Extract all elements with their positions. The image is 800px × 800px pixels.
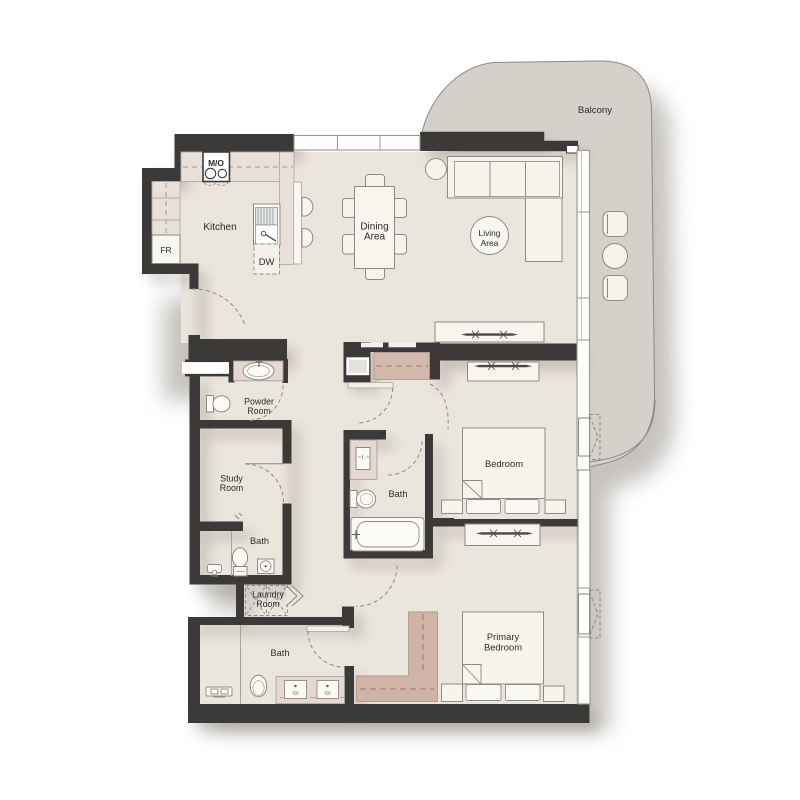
svg-text:Balcony: Balcony (578, 105, 612, 116)
svg-text:FR: FR (160, 245, 171, 255)
svg-text:Area: Area (481, 238, 499, 248)
svg-text:DW: DW (259, 256, 275, 267)
svg-text:Study: Study (220, 474, 243, 484)
svg-text:Laundry: Laundry (252, 590, 284, 600)
svg-text:Kitchen: Kitchen (203, 222, 236, 233)
svg-text:Bath: Bath (271, 648, 290, 658)
svg-text:Bath: Bath (389, 489, 408, 499)
svg-text:Primary: Primary (487, 631, 520, 642)
svg-text:Area: Area (364, 232, 386, 243)
svg-text:Bedroom: Bedroom (484, 642, 522, 653)
svg-text:Room: Room (247, 406, 270, 416)
svg-text:Room: Room (220, 483, 243, 493)
svg-text:M/O: M/O (208, 158, 224, 168)
svg-text:Bath: Bath (250, 536, 269, 546)
svg-text:Powder: Powder (244, 397, 274, 407)
svg-text:Room: Room (256, 599, 279, 609)
svg-text:Bedroom: Bedroom (485, 458, 523, 469)
svg-text:Living: Living (479, 228, 501, 238)
